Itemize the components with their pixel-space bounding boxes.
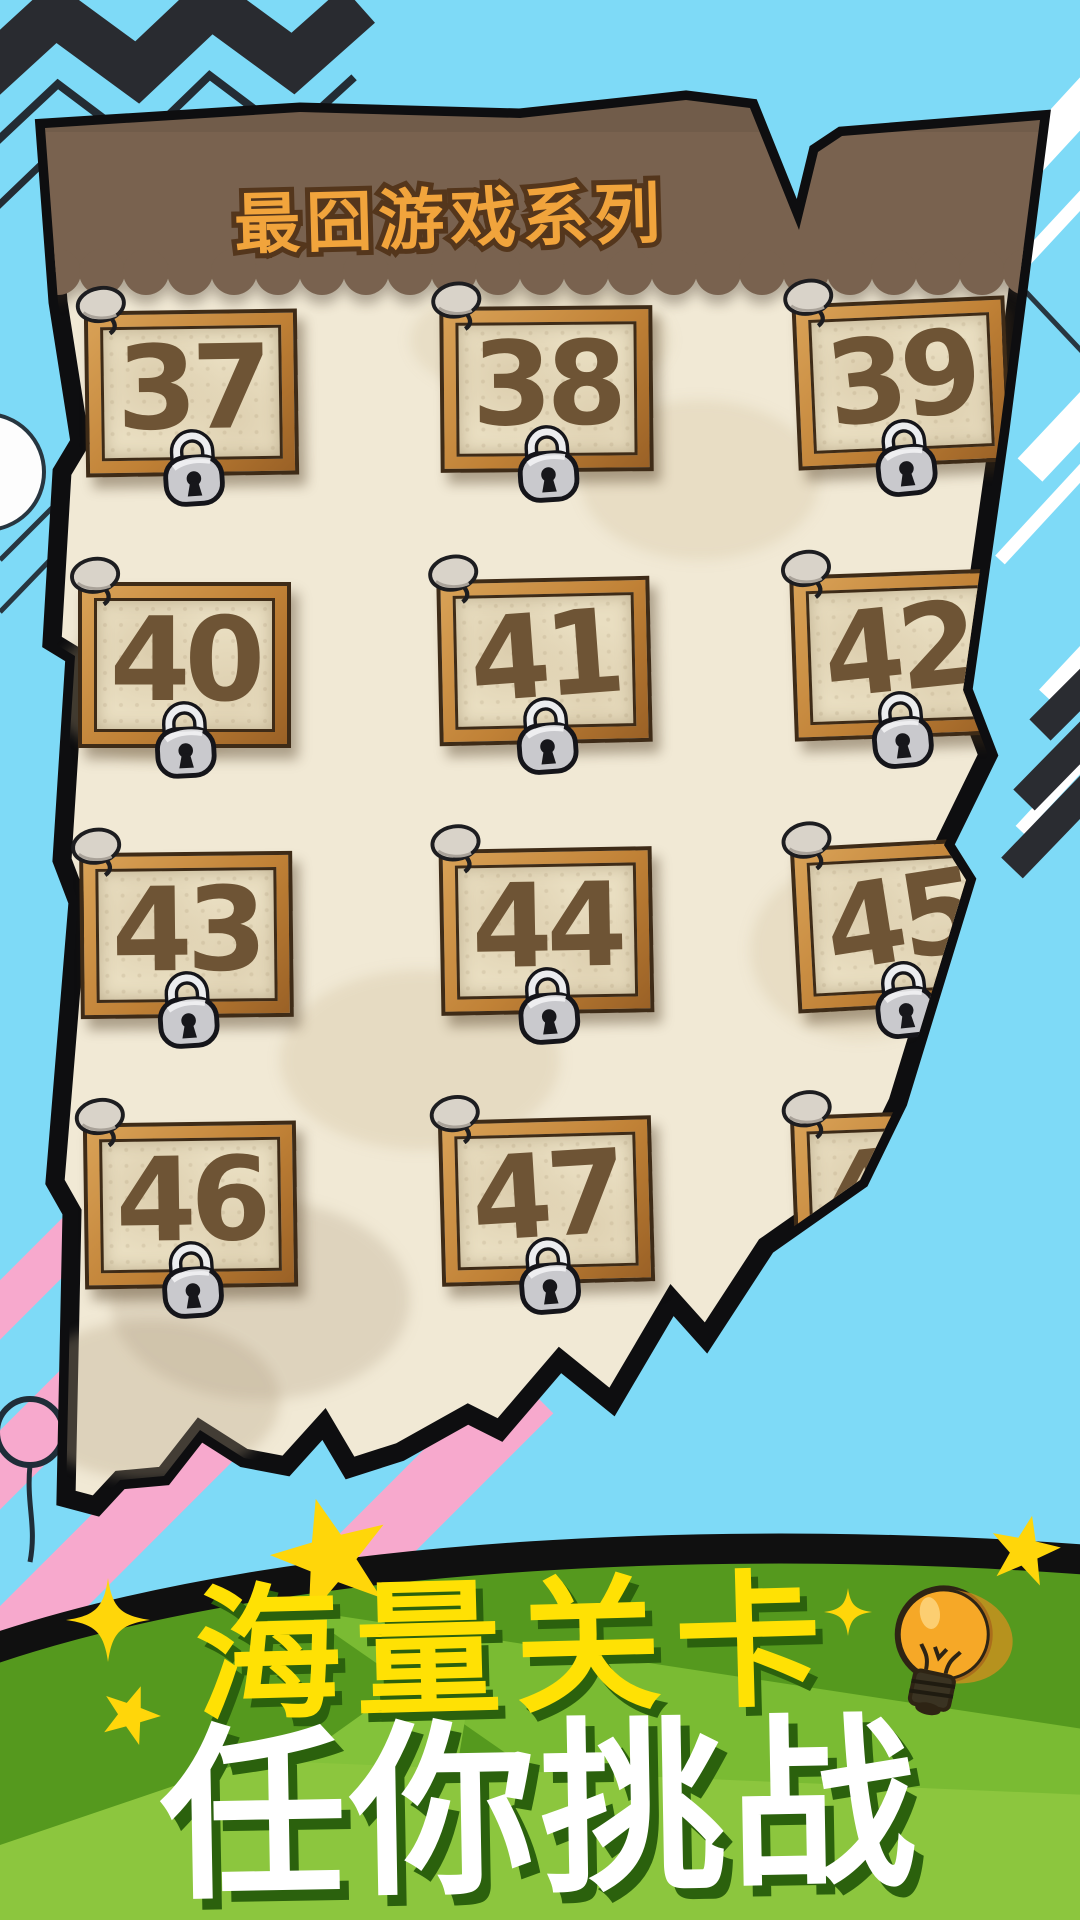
star-icon xyxy=(984,1508,1066,1588)
promo-line-2: 任你挑战 xyxy=(18,1709,1061,1913)
game-level-select-screen: 最囧游戏系列 37 38 39 40 xyxy=(0,0,1080,1920)
